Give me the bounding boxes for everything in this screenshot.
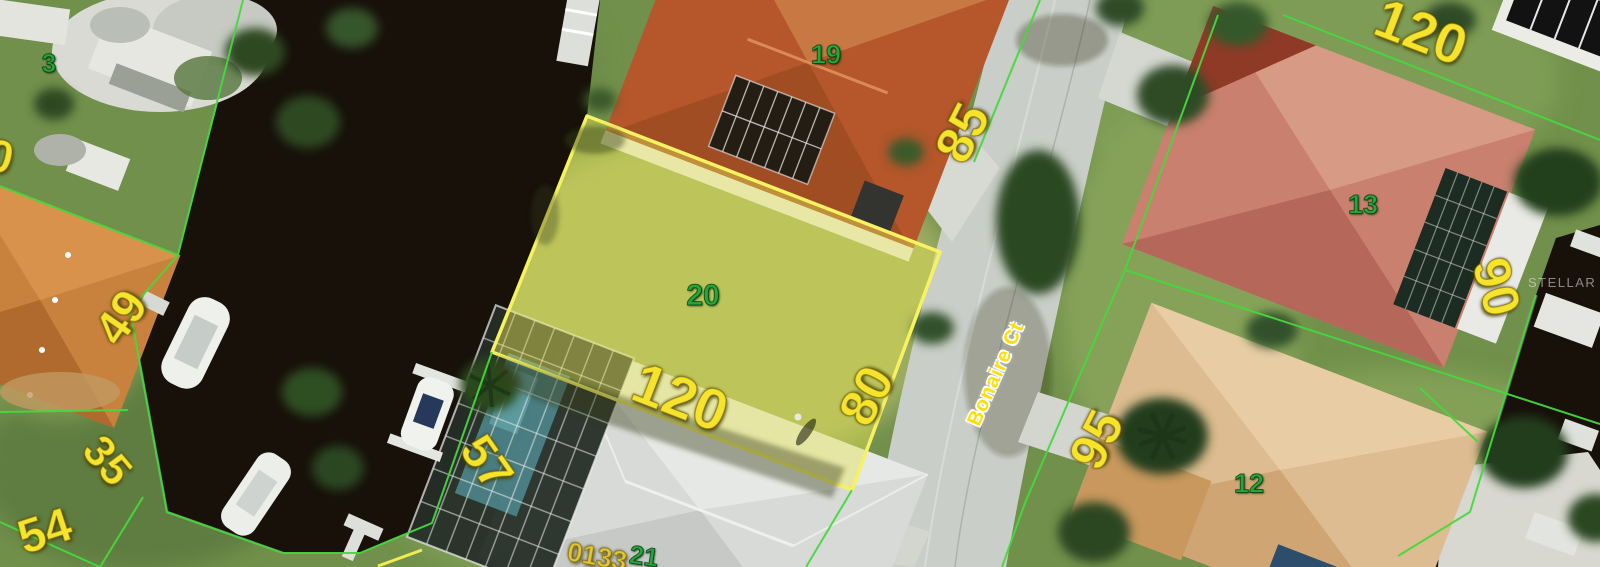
aerial-photo-canvas <box>0 0 1600 567</box>
aerial-map: 120 80 85 49 35 54 57 80 120 90 95 0133 … <box>0 0 1600 567</box>
